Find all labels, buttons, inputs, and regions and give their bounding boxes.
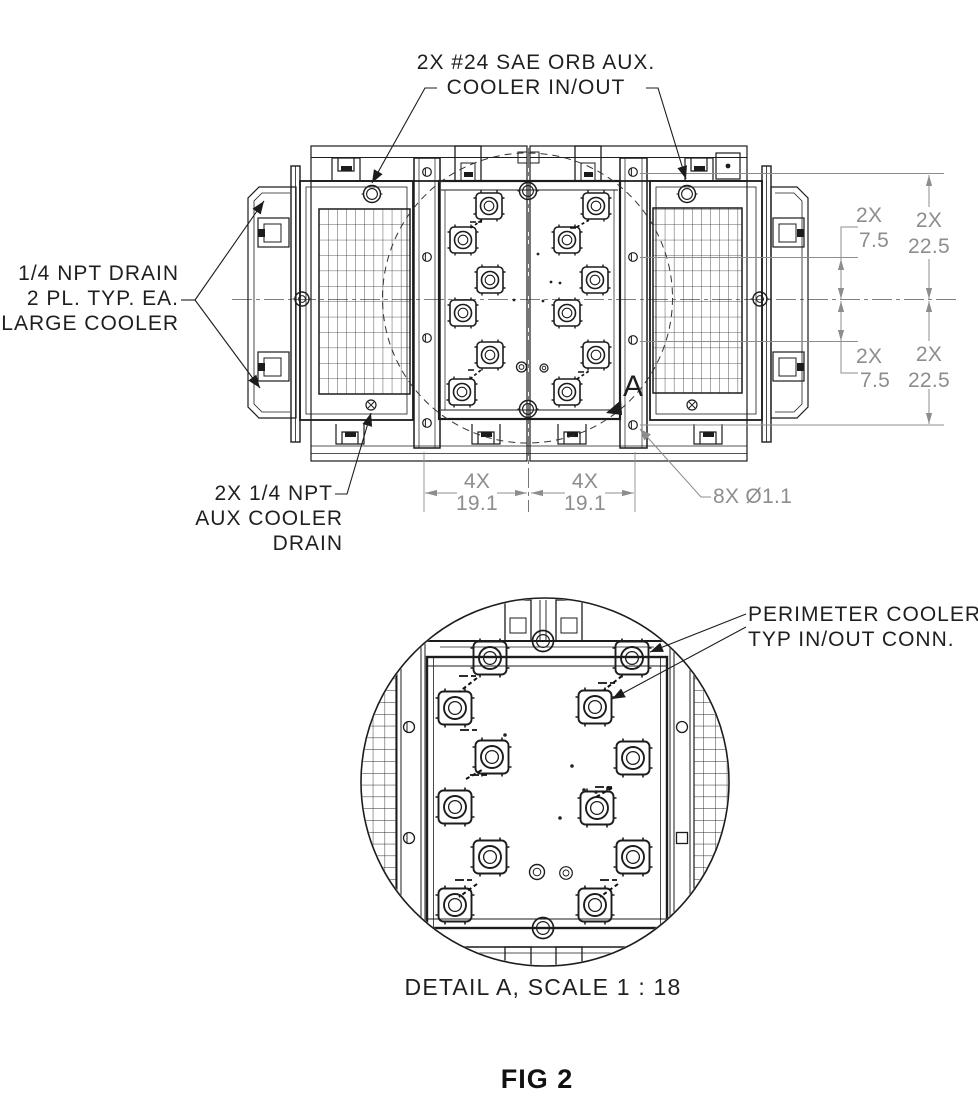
dim-right-top-large-value: 22.5 <box>908 235 950 258</box>
aux-drain-right <box>687 400 697 410</box>
dim-right-bottom-large-value: 22.5 <box>908 369 950 392</box>
leader-aux-inout-left <box>372 88 437 183</box>
callout-aux-drain-line2: AUX COOLER <box>195 507 343 530</box>
leader-aux-inout-right <box>646 88 686 179</box>
callout-aux-inout-line2: COOLER IN/OUT <box>447 76 626 99</box>
right-cooler-grid <box>650 181 770 420</box>
dim-right-bottom-small-qty: 2X <box>856 345 882 368</box>
leader-npt-drain-lower <box>195 300 260 388</box>
detail-caption: DETAIL A, SCALE 1 : 18 <box>405 974 682 1000</box>
aux-cooler-port-left <box>362 186 383 203</box>
callout-npt-drain-line1: 1/4 NPT DRAIN <box>18 262 179 285</box>
callout-npt-drain-line2: 2 PL. TYP. EA. <box>27 287 179 310</box>
figure-caption: FIG 2 <box>501 1064 574 1094</box>
aux-drain-left <box>366 400 376 410</box>
dim-bolt-holes: 8X Ø1.1 <box>713 485 792 508</box>
left-rail <box>414 158 440 448</box>
dim-bottom-left-value: 19.1 <box>456 492 498 515</box>
detail-left-mesh <box>361 596 396 968</box>
callout-npt-drain-line3: LARGE COOLER <box>1 312 179 335</box>
detail-dots <box>503 733 610 820</box>
technical-drawing: 2X 7.5 2X 22.5 2X 7.5 2X 22.5 4X 19.1 4X… <box>0 0 978 1108</box>
dim-bottom-right-qty: 4X <box>572 470 598 493</box>
dim-right-top-large-qty: 2X <box>916 209 942 232</box>
left-side-panel <box>248 166 300 442</box>
aux-cooler-port-right <box>677 186 698 203</box>
detail-left-rail <box>397 596 425 968</box>
detail-right-rail <box>670 596 690 968</box>
leader-perimeter-lower <box>612 627 746 699</box>
drawing-sheet: 2X 7.5 2X 22.5 2X 7.5 2X 22.5 4X 19.1 4X… <box>0 0 978 1108</box>
callout-aux-drain-line3: DRAIN <box>273 532 343 555</box>
main-view <box>232 146 958 512</box>
detail-a-marker: A <box>623 370 643 403</box>
right-rail <box>620 158 647 448</box>
callout-perimeter-line1: PERIMETER COOLER <box>748 603 978 626</box>
right-side-panel <box>762 166 808 442</box>
leader-perimeter-upper <box>650 614 746 652</box>
callout-aux-drain-line1: 2X 1/4 NPT <box>214 482 333 505</box>
dim-bottom-right-value: 19.1 <box>564 492 606 515</box>
detail-view <box>361 596 729 968</box>
detail-panel <box>427 600 667 968</box>
callout-aux-inout-line1: 2X #24 SAE ORB AUX. <box>417 51 655 74</box>
dim-right-top-small-qty: 2X <box>856 204 882 227</box>
callout-texts: 2X #24 SAE ORB AUX. COOLER IN/OUT 1/4 NP… <box>1 51 978 651</box>
dim-bottom-left-qty: 4X <box>464 470 490 493</box>
dim-right-bottom-small-value: 7.5 <box>860 369 890 392</box>
panel-dots <box>513 253 562 303</box>
dim-right-bottom-large-qty: 2X <box>916 343 942 366</box>
dim-right-top-small-value: 7.5 <box>859 229 889 252</box>
callout-perimeter-line2: TYP IN/OUT CONN. <box>748 628 955 651</box>
